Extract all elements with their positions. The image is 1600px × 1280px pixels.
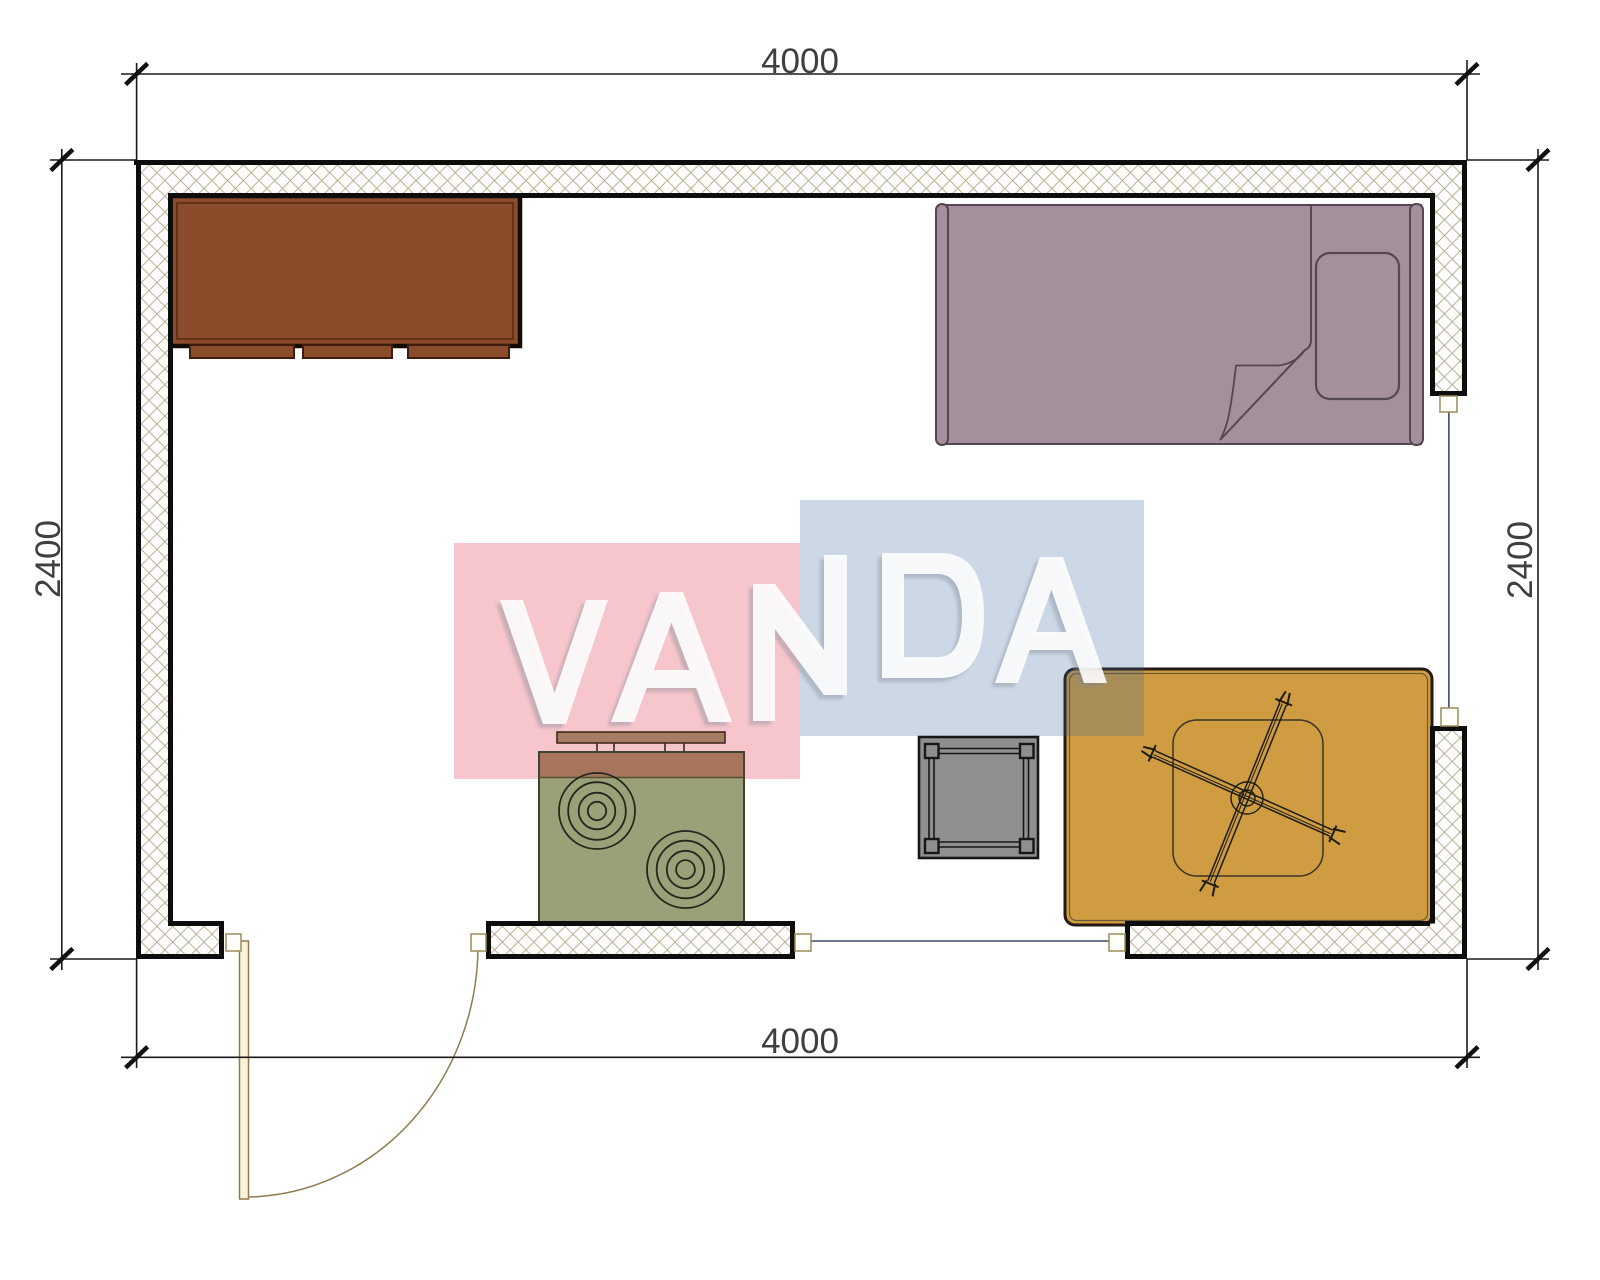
svg-text:4000: 4000 [761,42,839,81]
svg-text:4000: 4000 [761,1022,839,1061]
svg-text:2400: 2400 [29,520,68,598]
svg-text:2400: 2400 [1501,521,1540,599]
